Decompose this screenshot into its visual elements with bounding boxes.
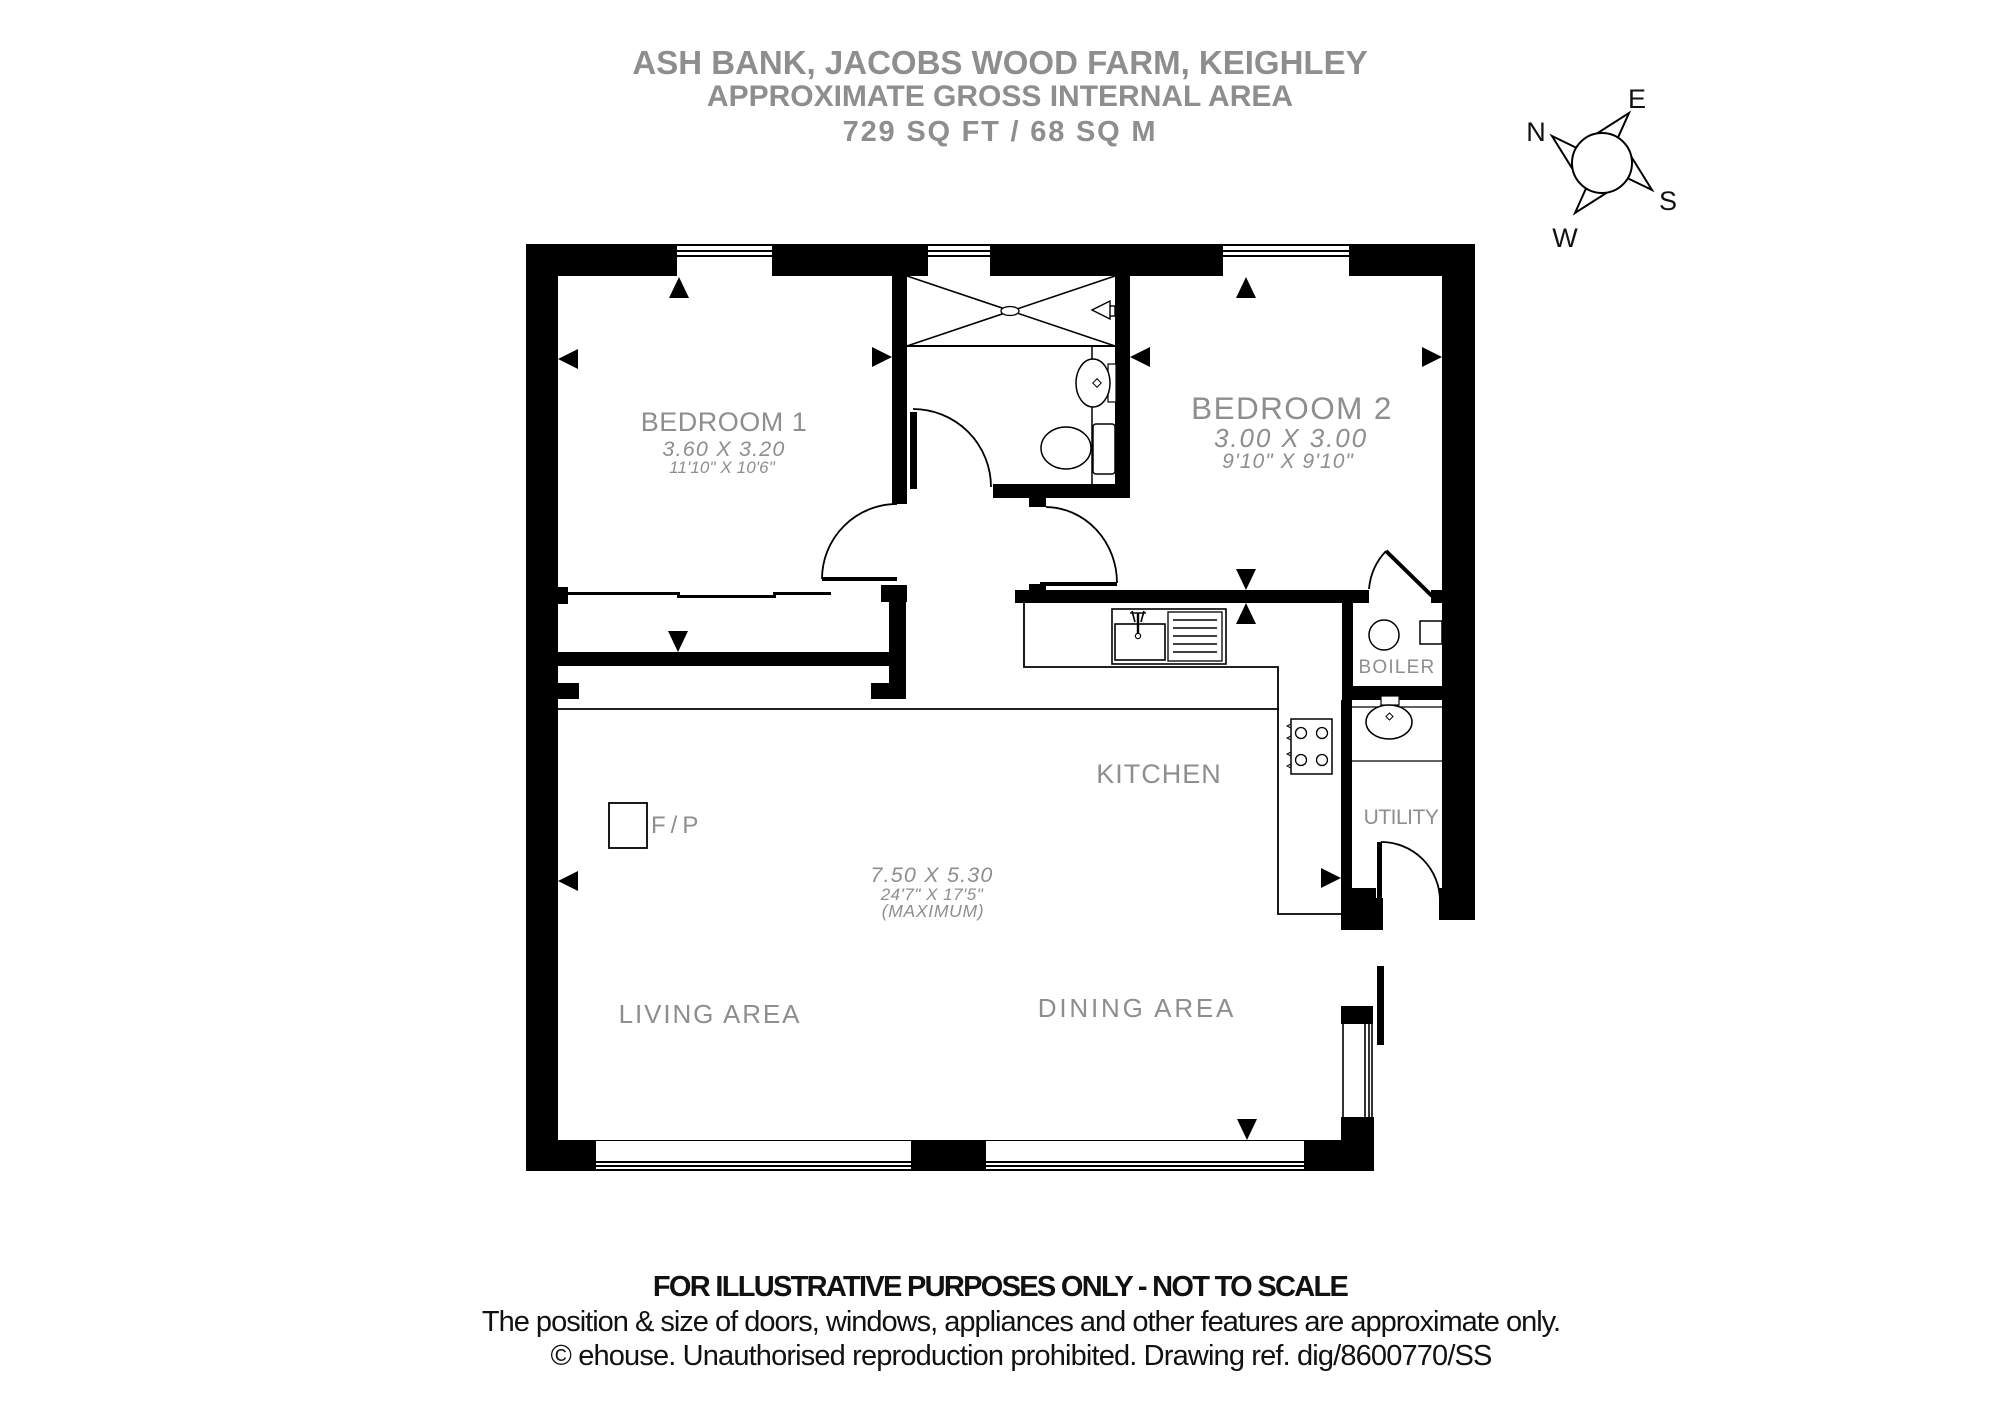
svg-text:11'10" X 10'6": 11'10" X 10'6" (669, 458, 776, 477)
svg-text:BEDROOM 1: BEDROOM 1 (641, 407, 808, 437)
svg-text:ASH BANK, JACOBS WOOD FARM, KE: ASH BANK, JACOBS WOOD FARM, KEIGHLEY (632, 44, 1367, 81)
svg-text:KITCHEN: KITCHEN (1096, 759, 1222, 789)
svg-text:W: W (1552, 223, 1578, 253)
svg-text:3.00 X 3.00: 3.00 X 3.00 (1214, 423, 1368, 453)
svg-text:© ehouse. Unauthorised reprodu: © ehouse. Unauthorised reproduction proh… (550, 1340, 1492, 1372)
svg-text:9'10" X 9'10": 9'10" X 9'10" (1222, 450, 1354, 473)
svg-text:UTILITY: UTILITY (1364, 806, 1439, 829)
svg-text:S: S (1659, 186, 1677, 216)
svg-text:APPROXIMATE GROSS INTERNAL ARE: APPROXIMATE GROSS INTERNAL AREA (707, 80, 1293, 113)
svg-text:BOILER: BOILER (1359, 657, 1436, 678)
svg-text:FOR ILLUSTRATIVE PURPOSES ONLY: FOR ILLUSTRATIVE PURPOSES ONLY - NOT TO … (653, 1271, 1349, 1303)
svg-text:E: E (1628, 84, 1646, 114)
svg-text:7.50 X 5.30: 7.50 X 5.30 (870, 863, 993, 887)
svg-text:(MAXIMUM): (MAXIMUM) (882, 901, 985, 921)
svg-text:LIVING AREA: LIVING AREA (619, 999, 802, 1029)
svg-text:F/P: F/P (651, 812, 703, 839)
svg-text:N: N (1526, 117, 1546, 147)
svg-text:The position & size of doors,: The position & size of doors, windows, a… (482, 1306, 1560, 1338)
svg-text:729 SQ FT / 68 SQ M: 729 SQ FT / 68 SQ M (843, 116, 1158, 148)
svg-text:BEDROOM 2: BEDROOM 2 (1191, 390, 1393, 426)
svg-text:DINING AREA: DINING AREA (1038, 993, 1236, 1023)
